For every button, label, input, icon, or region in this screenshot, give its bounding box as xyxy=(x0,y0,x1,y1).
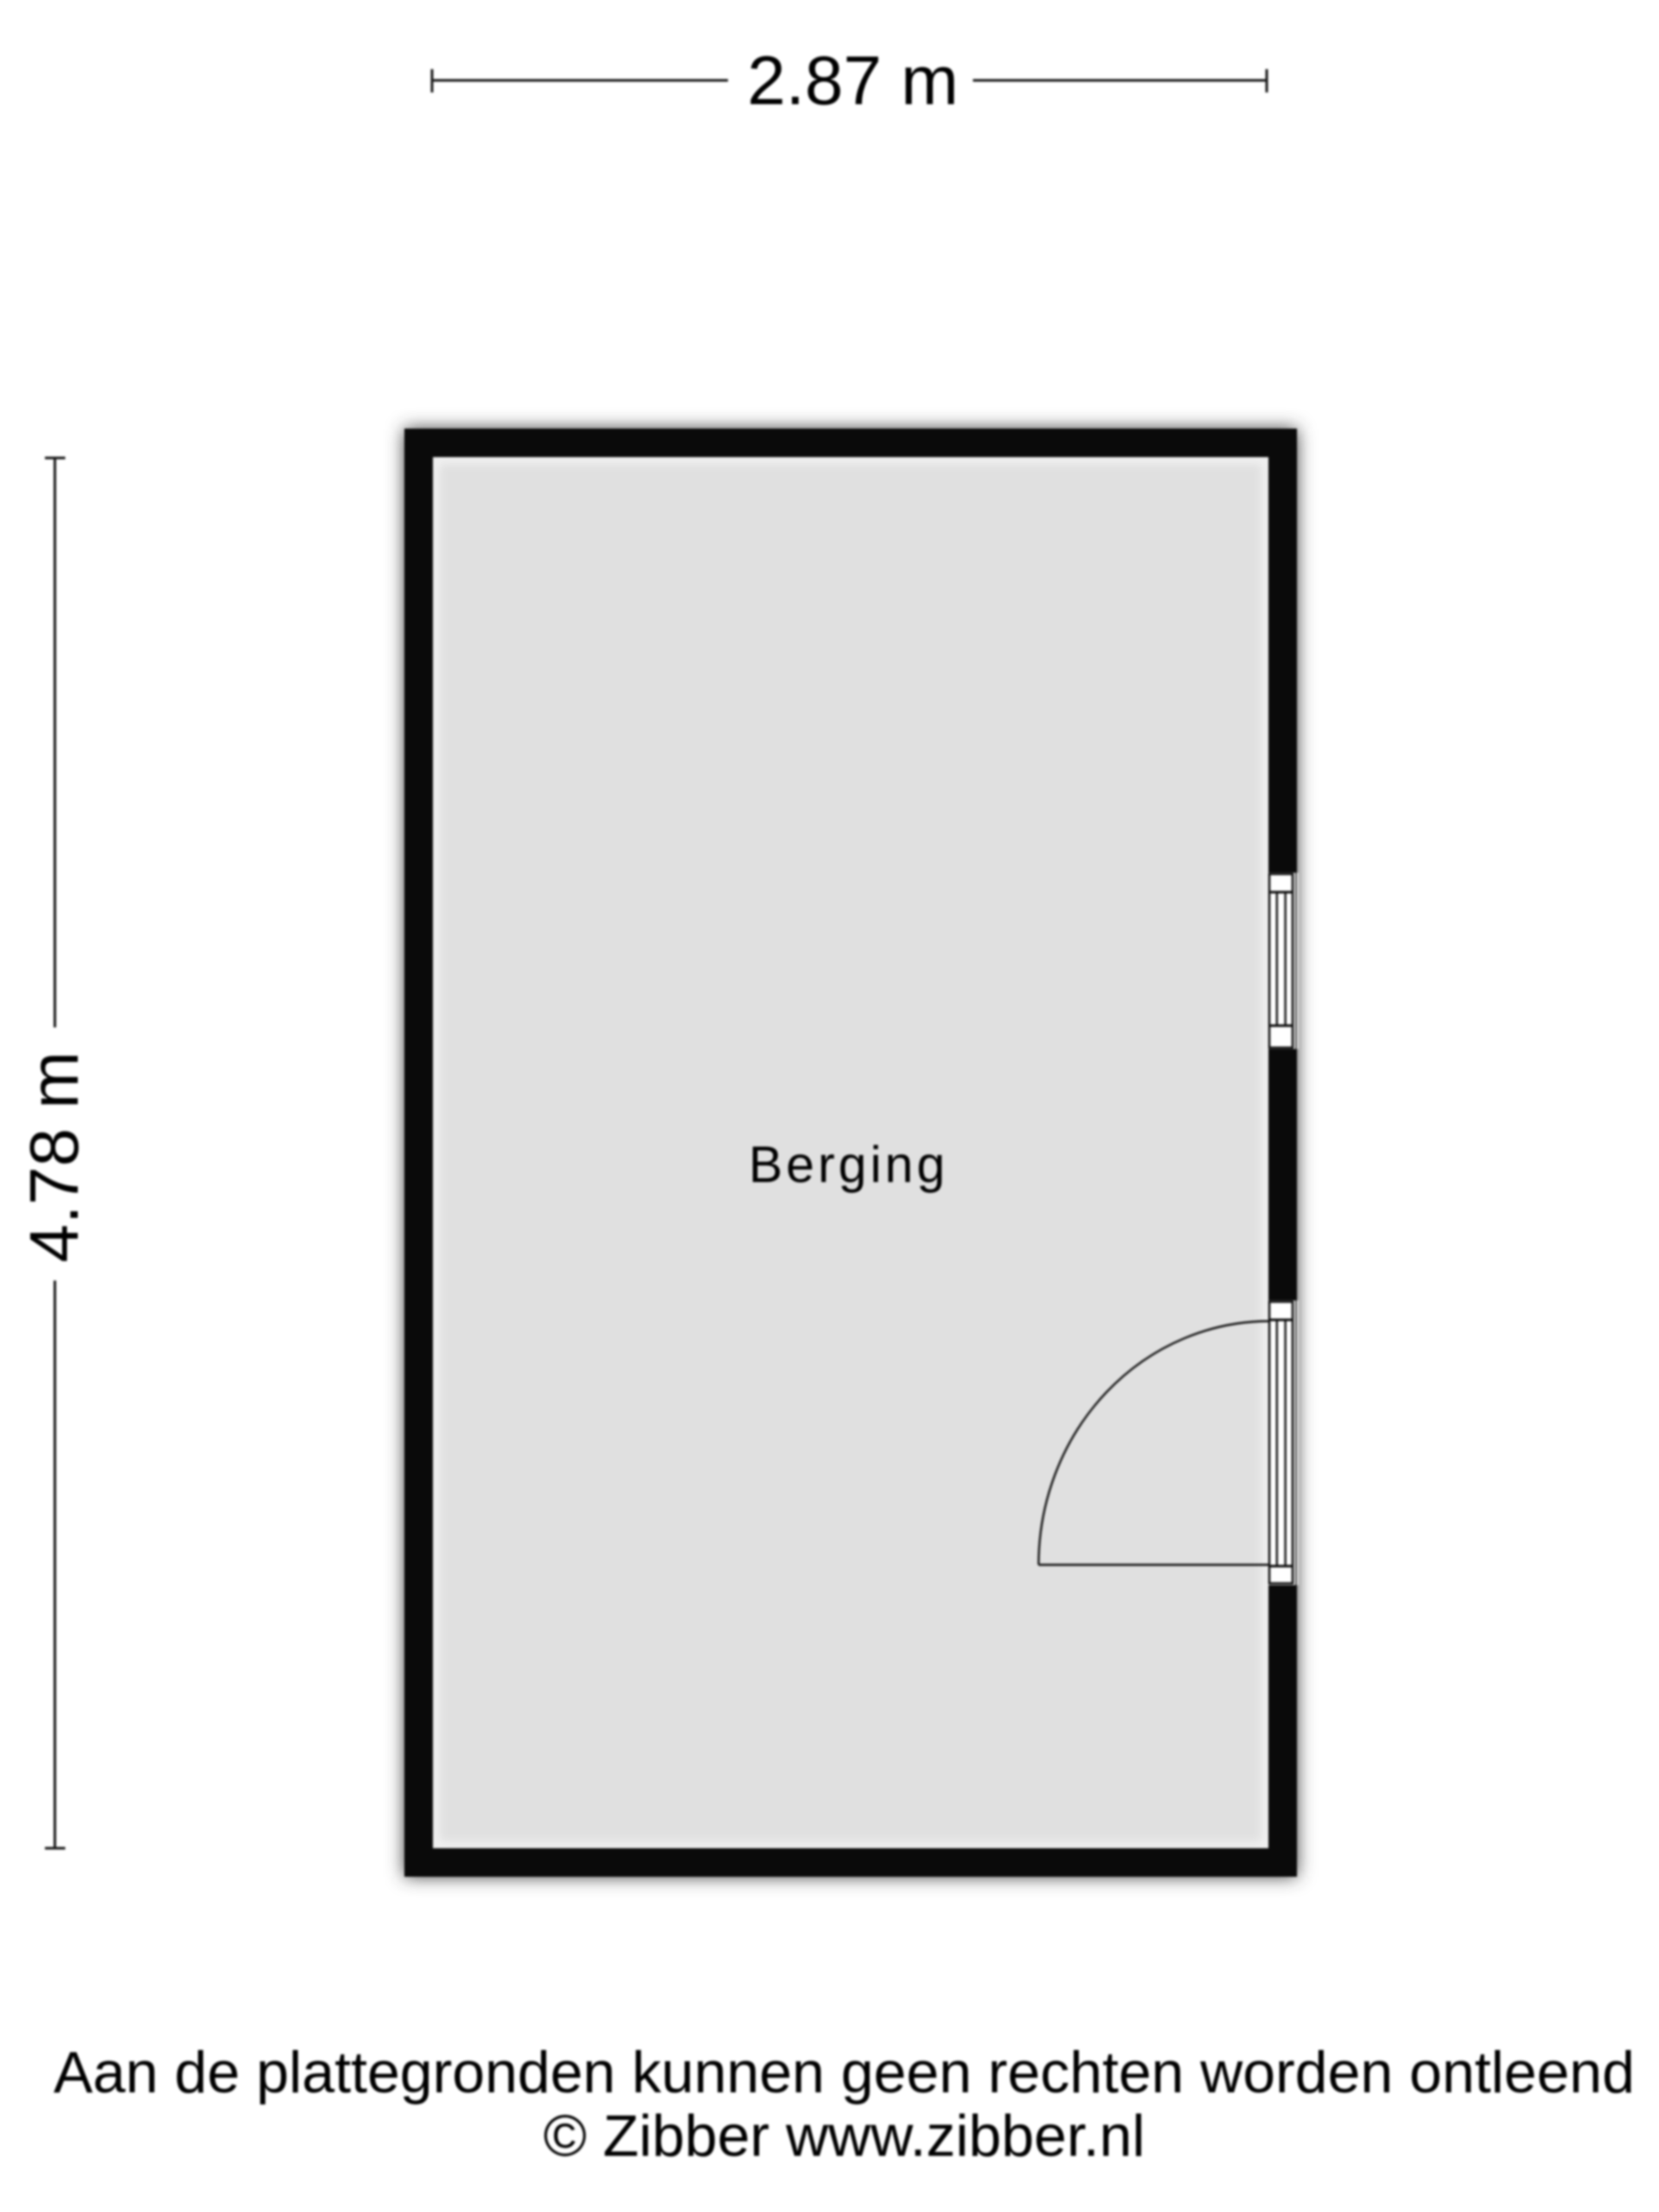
svg-text:© Zibber www.zibber.nl: © Zibber www.zibber.nl xyxy=(543,2103,1145,2169)
svg-text:4.78 m: 4.78 m xyxy=(16,1052,92,1263)
svg-text:2.87 m: 2.87 m xyxy=(747,42,959,119)
svg-text:Aan de plattegronden kunnen ge: Aan de plattegronden kunnen geen rechten… xyxy=(54,2040,1635,2106)
svg-text:Berging: Berging xyxy=(748,1136,948,1193)
